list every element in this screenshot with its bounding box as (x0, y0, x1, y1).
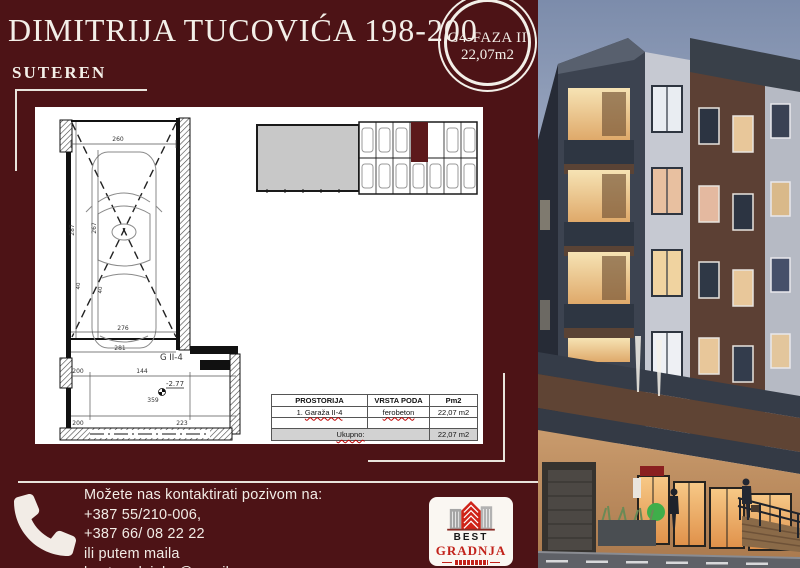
dim-room-a: 200 (72, 368, 84, 375)
dim-top-width: 260 (112, 136, 124, 143)
key-plan (255, 120, 479, 198)
col-header-vrsta-poda: VRSTA PODA (368, 395, 430, 407)
dim-inner-height: 267 (91, 222, 98, 234)
dim-room-b: 144 (136, 368, 148, 375)
table-empty-row (272, 418, 478, 429)
contact-intro: Možete nas kontaktirati pozivom na: (84, 486, 424, 506)
phase-badge: G4-FAZA II 22,07m2 (438, 0, 537, 92)
keyplan-hall (257, 125, 359, 191)
dim-mid-width: 281 (114, 345, 126, 352)
keyplan-stalls (359, 122, 477, 194)
total-label: Ukupno: (337, 430, 365, 439)
logo-text-best: BEST (454, 532, 489, 543)
balcony (564, 170, 634, 256)
dim-room-c: 359 (147, 397, 159, 404)
company-logo: BEST GRADNJA (429, 497, 513, 566)
building-render-image (538, 0, 800, 568)
logo-tagline (442, 560, 500, 565)
elevation-value: -2.77 (166, 380, 184, 388)
empty-cell (272, 418, 368, 429)
table-total-row: Ukupno: 22,07 m2 (272, 429, 478, 441)
plan-column (60, 358, 72, 388)
dim-car-width: 276 (117, 325, 129, 332)
contact-block: Možete nas kontaktirati pozivom na: +387… (84, 486, 424, 568)
area-table: PROSTORIJA VRSTA PODA Pm2 1. Garaža II-4… (271, 394, 478, 441)
room-name: Garaža II-4 (305, 408, 343, 417)
dim-offset-b: 40 (98, 286, 104, 293)
dim-room-d: 223 (176, 420, 188, 427)
corner-bracket-top-left (15, 89, 147, 91)
side-window (540, 200, 550, 230)
plan-wall-notch (200, 360, 230, 370)
plan-wall (190, 346, 238, 354)
keyplan-highlighted-unit (411, 122, 428, 162)
floor-type: ferobeton (383, 408, 415, 417)
balcony (564, 252, 634, 338)
corner-bracket-bottom-right (368, 460, 505, 462)
unit-label: G II-4 (160, 353, 183, 363)
cell-total-label: Ukupno: (272, 429, 430, 441)
plan-right-wall-face (176, 118, 180, 350)
plan-right-wall (179, 118, 190, 350)
empty-cell (430, 418, 478, 429)
flyer-left-panel: DIMITRIJA TUCOVIĆA 198-200 G4-FAZA II 22… (0, 0, 538, 568)
contact-phone-1: +387 55/210-006, (84, 506, 424, 526)
dim-left-height: 287 (69, 224, 76, 236)
dim-room-e: 200 (72, 420, 84, 427)
balcony (564, 88, 634, 174)
floor-label: SUTEREN (12, 63, 106, 83)
plan-sheet: 260 287 267 40 40 276 281 G II-4 200 144… (35, 107, 483, 444)
garage-floor-plan: 260 287 267 40 40 276 281 G II-4 200 144… (50, 110, 248, 442)
dim-offset-a: 40 (76, 282, 82, 289)
cell-area: 22,07 m2 (430, 407, 478, 418)
red-sign (640, 466, 664, 476)
contact-email: bestgradnjabn@gmail.com (84, 564, 424, 568)
phase-badge-area: 22,07m2 (461, 47, 514, 64)
page-title: DIMITRIJA TUCOVIĆA 198-200 (8, 12, 438, 49)
balcony (568, 338, 630, 362)
plan-column (60, 120, 72, 152)
room-number: 1. (297, 408, 305, 417)
footer-separator-line (18, 481, 538, 483)
car-outline (86, 152, 162, 348)
phone-icon (14, 492, 76, 558)
elevation-marker (159, 388, 185, 396)
corner-bracket-bottom-right-vertical (503, 373, 505, 462)
col-header-pm2: Pm2 (430, 395, 478, 407)
col-header-prostorija: PROSTORIJA (272, 395, 368, 407)
empty-cell (368, 418, 430, 429)
logo-text-gradnja: GRADNJA (436, 543, 507, 559)
dimension-lines (71, 122, 236, 420)
side-window (540, 300, 550, 330)
plan-wall (230, 354, 240, 434)
cell-total-area: 22,07 m2 (430, 429, 478, 441)
green-sign (647, 503, 665, 521)
white-sign (633, 478, 641, 498)
table-header-row: PROSTORIJA VRSTA PODA Pm2 (272, 395, 478, 407)
phase-badge-phase: G4-FAZA II (448, 30, 527, 47)
buildings-icon (444, 501, 498, 531)
table-row: 1. Garaža II-4 ferobeton 22,07 m2 (272, 407, 478, 418)
phase-badge-ring: G4-FAZA II 22,07m2 (444, 0, 531, 86)
corner-bracket-top-left-vertical (15, 89, 17, 171)
cell-floor-type: ferobeton (368, 407, 430, 418)
cell-room-name: 1. Garaža II-4 (272, 407, 368, 418)
contact-phone-2: +387 66/ 08 22 22 (84, 525, 424, 545)
contact-mail-intro: ili putem maila (84, 545, 424, 565)
